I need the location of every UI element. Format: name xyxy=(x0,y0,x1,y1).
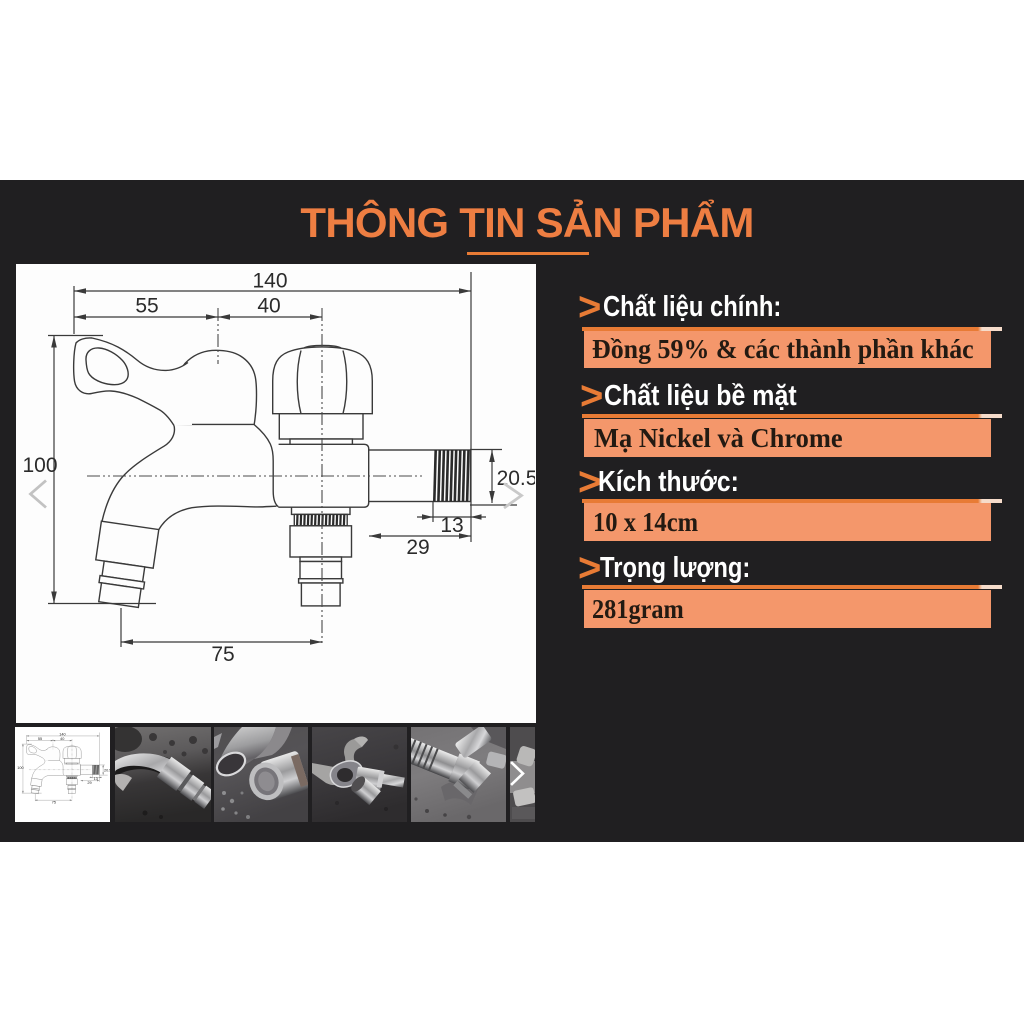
svg-text:55: 55 xyxy=(135,295,158,318)
svg-text:20.5: 20.5 xyxy=(497,467,535,490)
svg-text:140: 140 xyxy=(252,270,287,293)
svg-text:13: 13 xyxy=(440,514,463,537)
svg-text:100: 100 xyxy=(22,454,57,477)
svg-text:29: 29 xyxy=(406,536,429,559)
svg-text:40: 40 xyxy=(257,295,280,318)
svg-text:75: 75 xyxy=(211,643,234,666)
